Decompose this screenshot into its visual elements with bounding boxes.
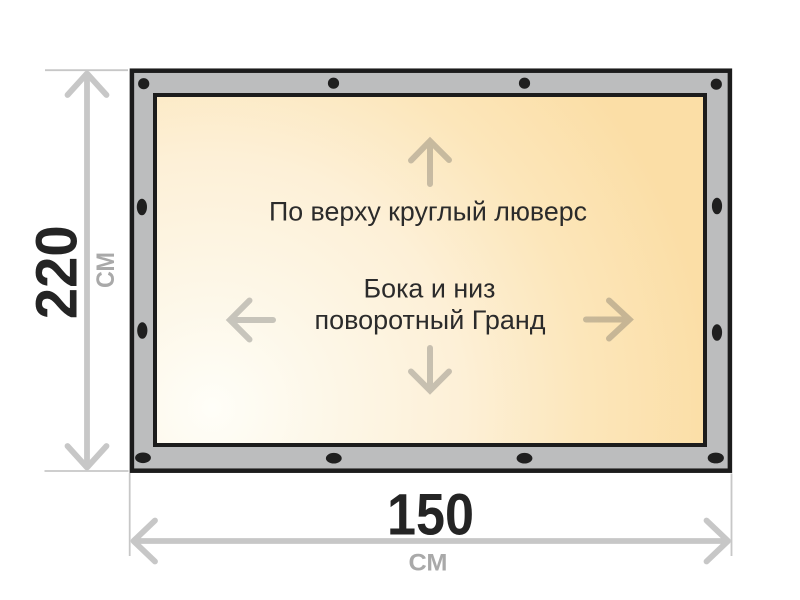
svg-text:СМ: СМ [92, 252, 120, 288]
svg-text:220: 220 [25, 225, 90, 319]
svg-text:поворотный Гранд: поворотный Гранд [315, 305, 546, 335]
svg-text:Бока и низ: Бока и низ [364, 274, 496, 304]
svg-text:СМ: СМ [409, 550, 448, 577]
svg-text:По верху круглый люверс: По верху круглый люверс [269, 197, 587, 227]
svg-text:150: 150 [387, 483, 474, 548]
